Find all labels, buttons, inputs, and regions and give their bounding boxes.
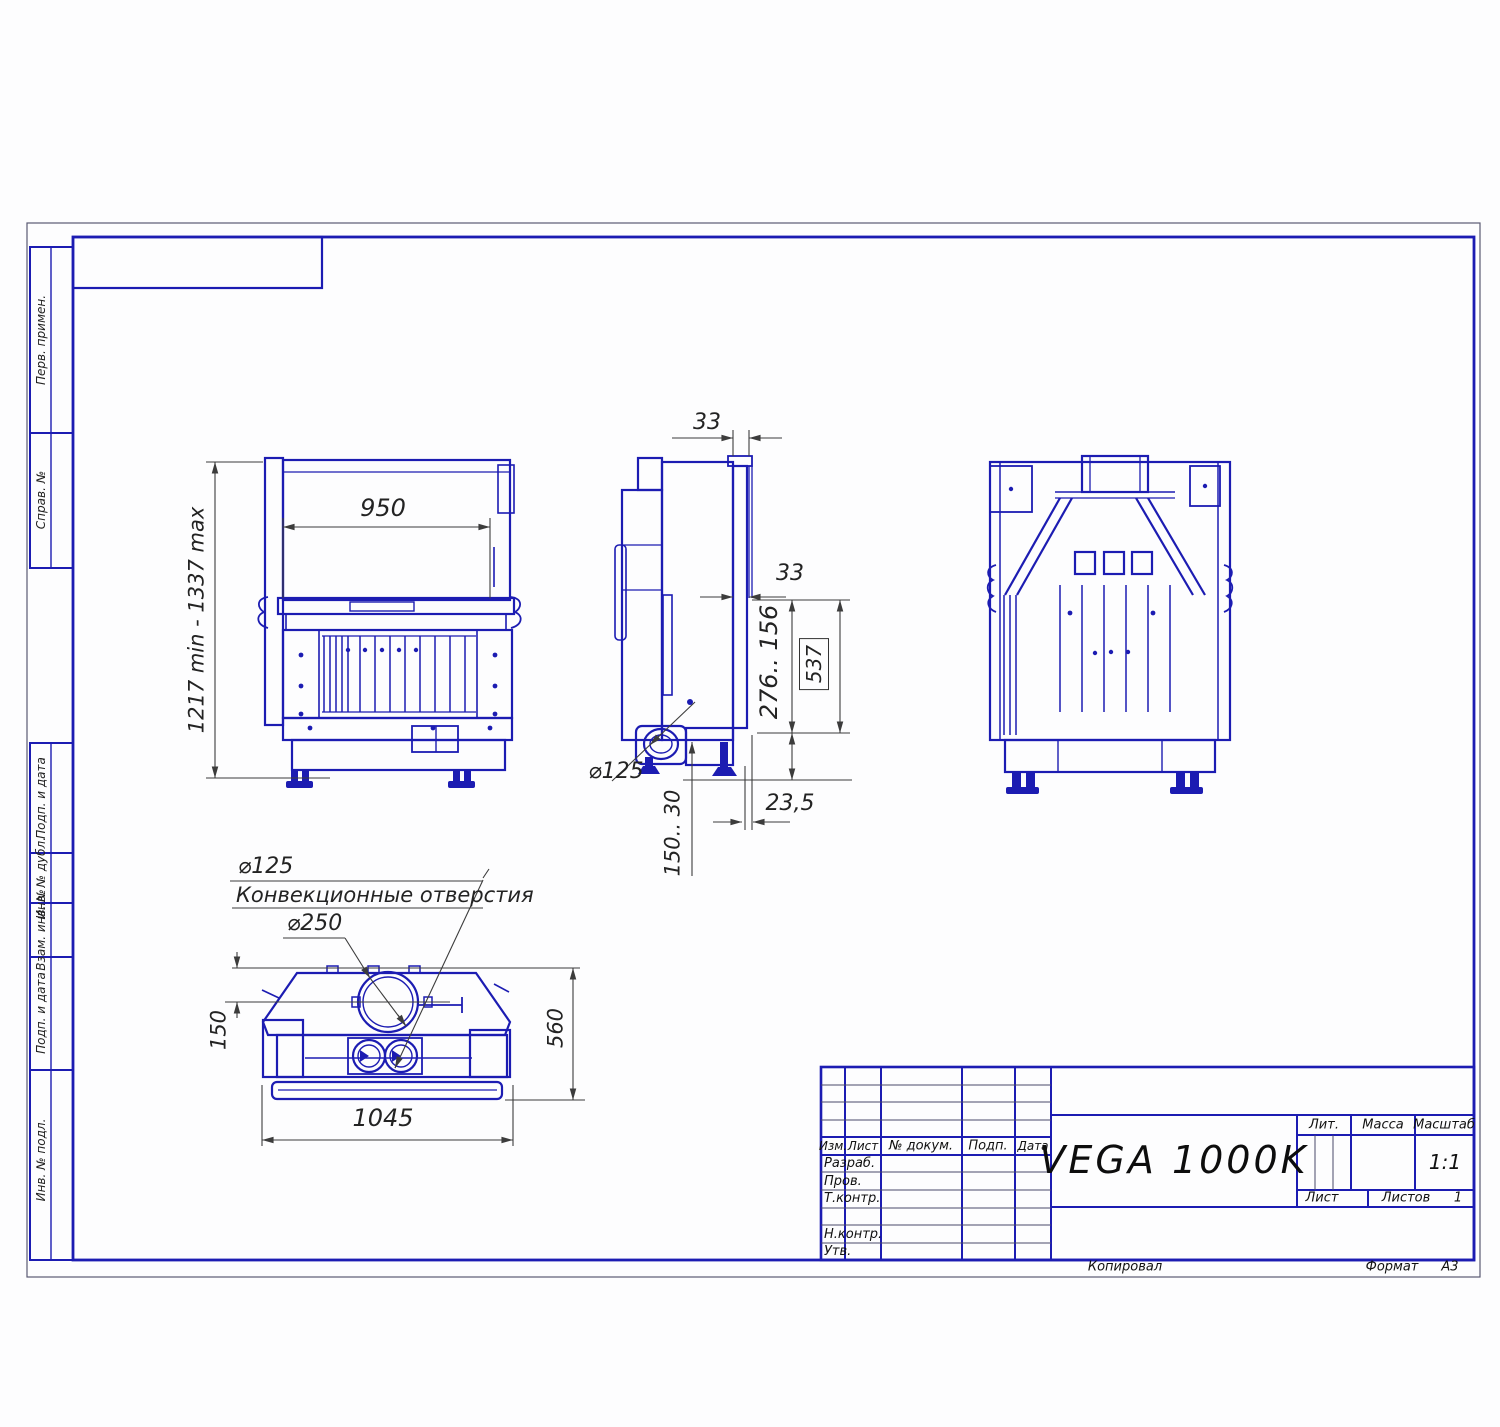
margin-label-inv-podl: Инв. № подл. [35,1119,47,1202]
dim-conv-note: Конвекционные отверстия [236,885,534,906]
margin-columns [30,247,73,1260]
tb-sheet-label: Лист [1306,1192,1339,1205]
drawing-linework [0,0,1500,1427]
tb-row-nkontr: Н.контр. [824,1228,882,1241]
dim-front-gap: 23,5 [766,793,815,815]
tb-col-list: Лист [848,1140,878,1152]
drawing-sheet: Перв. примен. Справ. № Подп. и дата Инв.… [0,0,1500,1427]
tb-document-title: VEGA 1000K [1039,1141,1308,1179]
dim-front-height-range: 1217 min - 1337 max [187,507,208,734]
dim-gap-mid: 33 [776,563,804,585]
dim-conv-dia: ⌀125 [238,856,293,878]
sheet-frame [27,223,1480,1277]
tb-sheets-value: 1 [1454,1192,1462,1205]
front-clamp-left [258,597,268,628]
dim-depth-range: 276.. 156 [757,605,781,720]
dim-side-outlet-dia: ⌀125 [588,761,643,783]
dim-bottom-width: 1045 [352,1106,413,1130]
margin-label-podp-data-2: Подп. и дата [35,972,47,1054]
dim-gap-top: 33 [693,412,721,434]
tb-row-prov: Пров. [824,1175,862,1188]
side-view [615,456,752,776]
tb-col-ndocum: № докум. [889,1140,953,1153]
tb-row-tkontr: Т.контр. [824,1192,880,1205]
front-dims [206,462,490,778]
tb-col-izm: Изм. [819,1140,847,1152]
tb-scale-label: Масштаб [1413,1119,1475,1132]
margin-label-sprav-no: Справ. № [35,471,47,529]
tb-lit-label: Лит. [1309,1119,1339,1132]
dim-depth-ref-boxed: 537 [804,638,824,690]
tb-mass-label: Масса [1362,1119,1403,1132]
tb-row-utv: Утв. [824,1245,851,1258]
tb-col-podp: Подп. [968,1140,1007,1153]
top-view [262,966,510,1099]
dim-total-depth: 560 [546,1008,567,1048]
dim-flue-dia: ⌀250 [287,913,342,935]
dim-front-width: 950 [360,496,406,520]
tb-sheets-label: Листов [1382,1192,1431,1205]
margin-label-vzam-inv: Взам. инв. № [35,889,47,970]
side-legs [638,742,737,776]
front-legs [286,770,475,788]
front-clamp-right [511,597,521,628]
dim-leg-range: 150.. 30 [663,790,684,877]
dim-depth-ref-value: 537 [799,638,829,690]
tb-format-value: А3 [1441,1261,1458,1274]
margin-label-perv-primen: Перв. примен. [35,295,47,385]
tb-scale-value: 1:1 [1429,1152,1461,1172]
tb-copied-label: Копировал [1088,1261,1162,1274]
tb-format-label: Формат [1366,1261,1419,1274]
rear-view [988,456,1233,794]
dim-back-offset: 150 [209,1010,230,1050]
rear-legs [1006,772,1203,794]
margin-label-podp-data-1: Подп. и дата [35,757,47,839]
tb-row-razrab: Разраб. [824,1157,875,1170]
